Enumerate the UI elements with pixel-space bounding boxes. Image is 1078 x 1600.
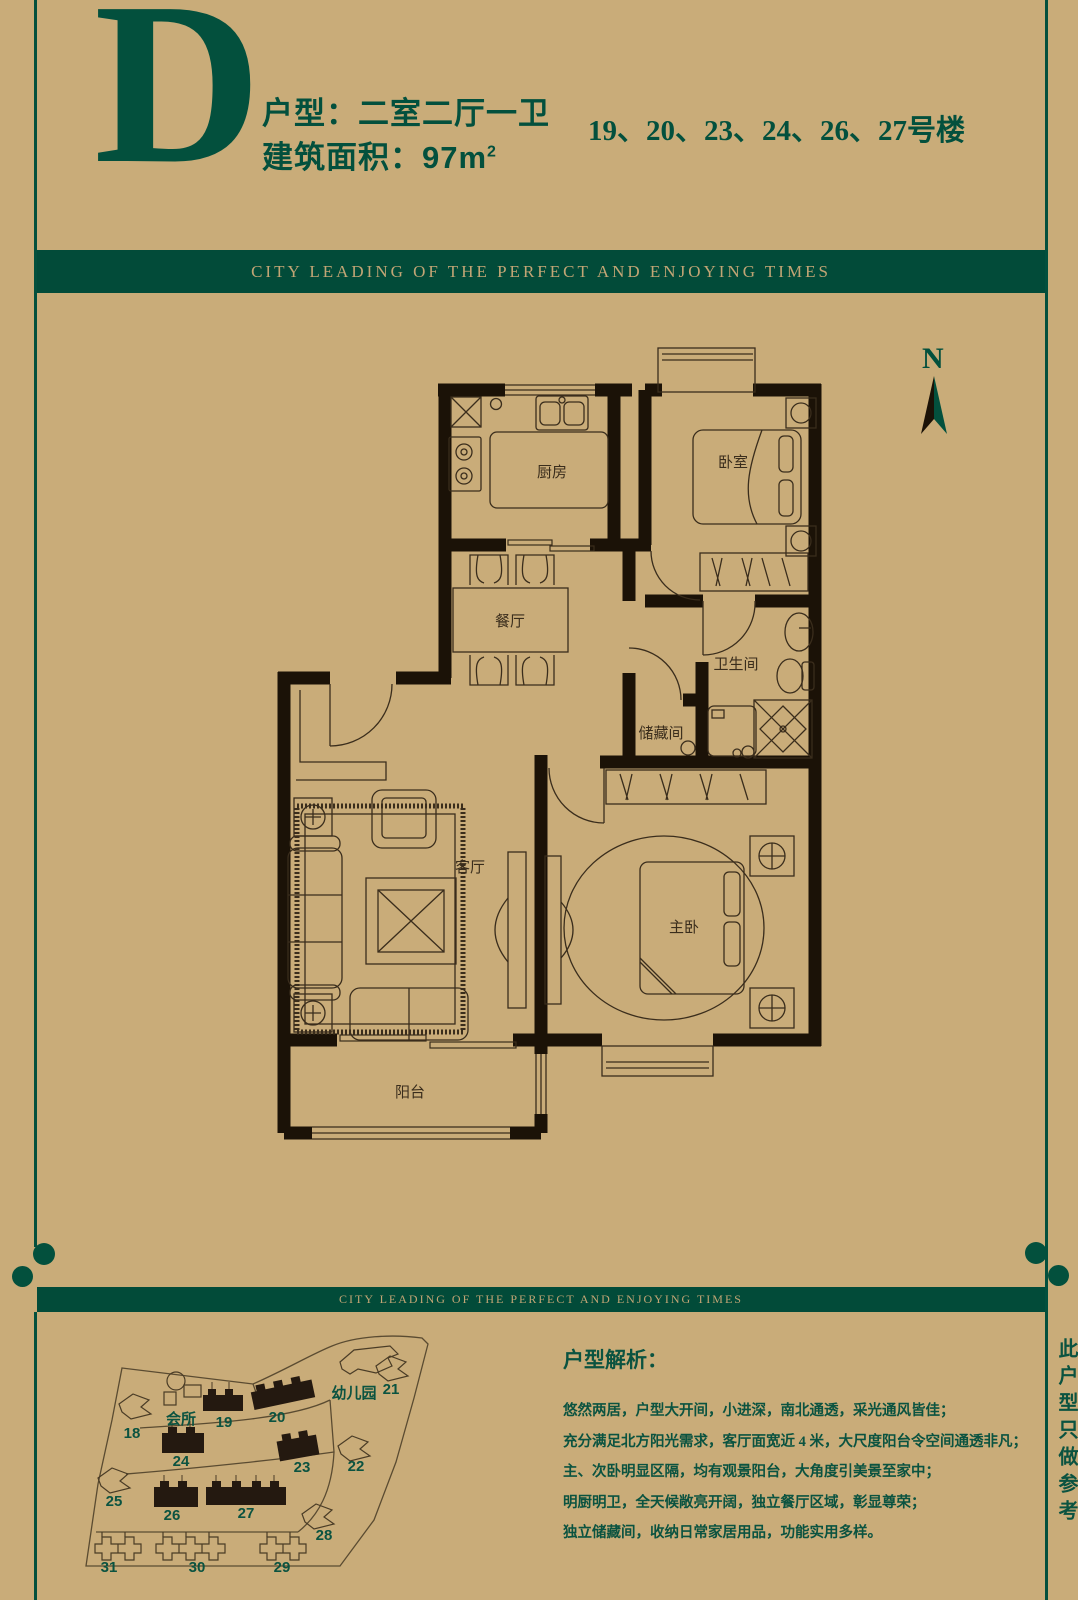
- area-text: 建筑面积：97m: [262, 140, 487, 175]
- master-bay-window: [602, 1046, 713, 1076]
- decor-dot: [33, 1243, 55, 1265]
- building-numbers-title: 19、20、23、24、26、27号楼: [588, 107, 965, 149]
- north-label: N: [922, 342, 944, 375]
- bottom-banner-text: CITY LEADING OF THE PERFECT AND ENJOYING…: [339, 1292, 743, 1307]
- bldg-24: 24: [173, 1453, 190, 1470]
- dining-chair: [516, 655, 554, 685]
- bldg-30: 30: [189, 1559, 206, 1576]
- bldg-18: 18: [124, 1425, 141, 1442]
- dining-chair: [470, 555, 508, 585]
- decor-dot: [1048, 1265, 1069, 1286]
- kitchen-label: 厨房: [537, 464, 567, 481]
- plan-letter: D: [94, 0, 262, 200]
- dining-chair: [516, 555, 554, 585]
- balcony-label: 阳台: [395, 1084, 425, 1101]
- master-label: 主卧: [669, 919, 699, 936]
- bedroom-label: 卧室: [718, 454, 748, 471]
- side-note: 此户型只做参考: [1052, 1338, 1078, 1527]
- bldg-28: 28: [316, 1527, 333, 1544]
- area-title: 建筑面积：97m2: [262, 132, 497, 177]
- living-label: 客厅: [455, 859, 485, 876]
- site-map-roads: [86, 1336, 428, 1566]
- bldg-23: 23: [294, 1459, 311, 1476]
- highlighted-buildings: [154, 1374, 319, 1507]
- right-frame-line: [1045, 0, 1048, 1600]
- analysis-heading: 户型解析：: [563, 1344, 1027, 1374]
- bldg-27: 27: [238, 1505, 255, 1522]
- storage-label: 储藏间: [638, 725, 683, 742]
- bldg-29: 29: [274, 1559, 291, 1576]
- analysis-line: 主、次卧明显区隔，均有观景阳台，大角度引美景至家中；: [563, 1457, 1027, 1488]
- windows: [312, 348, 755, 1139]
- master-wardrobe: [606, 770, 766, 804]
- analysis-block: 户型解析： 悠然两居，户型大开间，小进深，南北通透，采光通风皆佳； 充分满足北方…: [563, 1344, 1027, 1549]
- north-arrow: N: [921, 342, 947, 434]
- kindergarten-label: 幼儿园: [331, 1384, 376, 1402]
- decor-dot: [1025, 1242, 1047, 1264]
- washer: [708, 706, 756, 756]
- bldg-19: 19: [216, 1414, 233, 1431]
- decor-dot: [12, 1266, 33, 1287]
- furniture: [288, 396, 816, 1040]
- shoe-cabinet: [296, 690, 386, 780]
- analysis-line: 独立储藏间，收纳日常家居用品，功能实用多样。: [563, 1518, 1027, 1549]
- left-frame-line-top: [34, 0, 37, 1247]
- stove: [449, 437, 481, 491]
- poster-page: D 户型：二室二厅一卫 建筑面积：97m2 19、20、23、24、26、27号…: [0, 0, 1078, 1600]
- bath-label: 卫生间: [713, 656, 758, 673]
- unit-type-title: 户型：二室二厅一卫: [262, 88, 550, 133]
- dining-chair: [470, 655, 508, 685]
- top-banner: CITY LEADING OF THE PERFECT AND ENJOYING…: [37, 250, 1045, 293]
- outline-buildings: [95, 1346, 408, 1560]
- bed: [693, 430, 801, 524]
- site-map: 18 19 20 21 22 23 24 25 26 27 28 29 30 3…: [60, 1330, 480, 1600]
- top-banner-text: CITY LEADING OF THE PERFECT AND ENJOYING…: [251, 262, 831, 282]
- bldg-25: 25: [106, 1493, 123, 1510]
- left-frame-line-bottom: [34, 1312, 37, 1600]
- floorplan: 厨房 卧室 餐厅 卫生间 储藏间 客厅 主卧 阳台 N: [240, 325, 980, 1165]
- bldg-31: 31: [101, 1559, 118, 1576]
- analysis-line: 明厨明卫，全天候敞亮开阔，独立餐厅区域，彰显尊荣；: [563, 1488, 1027, 1519]
- analysis-line: 悠然两居，户型大开间，小进深，南北通透，采光通风皆佳；: [563, 1396, 1027, 1427]
- area-sup: 2: [487, 144, 497, 161]
- bldg-20: 20: [269, 1409, 286, 1426]
- bldg-21: 21: [383, 1381, 400, 1398]
- bottom-banner: CITY LEADING OF THE PERFECT AND ENJOYING…: [37, 1287, 1045, 1312]
- analysis-line: 充分满足北方阳光需求，客厅面宽近 4 米，大尺度阳台令空间通透非凡；: [563, 1427, 1027, 1458]
- toilet: [777, 659, 803, 693]
- bldg-26: 26: [164, 1507, 181, 1524]
- bldg-22: 22: [348, 1458, 365, 1475]
- dining-label: 餐厅: [495, 613, 525, 630]
- floorplan-walls: [278, 384, 821, 1133]
- master-rug: [564, 836, 764, 1020]
- clubhouse-label: 会所: [166, 1410, 196, 1428]
- living-rug: [297, 806, 463, 1032]
- tv-cabinet: [508, 852, 526, 1008]
